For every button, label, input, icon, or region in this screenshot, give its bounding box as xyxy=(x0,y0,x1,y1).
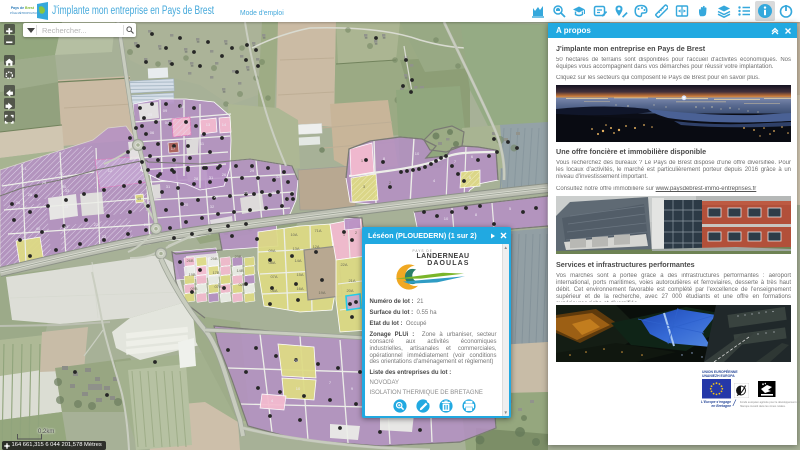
svg-text:19B: 19B xyxy=(188,272,195,277)
svg-text:26: 26 xyxy=(16,200,21,205)
svg-text:09: 09 xyxy=(163,108,168,113)
svg-text:40: 40 xyxy=(36,226,41,231)
svg-text:20: 20 xyxy=(184,202,189,207)
svg-text:06: 06 xyxy=(150,130,155,135)
svg-text:07A: 07A xyxy=(270,274,277,279)
svg-text:09A: 09A xyxy=(268,248,275,253)
svg-text:04: 04 xyxy=(165,120,170,125)
svg-text:07B: 07B xyxy=(214,284,221,289)
svg-text:30: 30 xyxy=(62,184,67,189)
svg-text:22: 22 xyxy=(214,194,219,199)
svg-text:09B: 09B xyxy=(190,286,197,291)
svg-text:45: 45 xyxy=(137,196,142,201)
svg-text:02B: 02B xyxy=(238,282,245,287)
svg-text:10: 10 xyxy=(444,216,449,221)
svg-text:2.1: 2.1 xyxy=(21,166,27,171)
svg-text:32: 32 xyxy=(210,204,215,209)
svg-text:31: 31 xyxy=(166,184,171,189)
svg-text:20: 20 xyxy=(294,358,299,363)
svg-text:12A: 12A xyxy=(312,244,319,249)
svg-text:23: 23 xyxy=(102,234,107,239)
svg-text:22A: 22A xyxy=(340,262,347,267)
svg-text:31: 31 xyxy=(209,175,214,180)
svg-text:10A: 10A xyxy=(290,232,297,237)
svg-text:29: 29 xyxy=(250,168,255,173)
svg-text:28: 28 xyxy=(194,176,199,181)
svg-text:15A: 15A xyxy=(296,272,303,277)
svg-text:13A: 13A xyxy=(292,246,299,251)
svg-text:17: 17 xyxy=(171,146,176,151)
svg-text:25B: 25B xyxy=(210,256,217,261)
svg-text:10: 10 xyxy=(296,386,301,391)
svg-text:23B: 23B xyxy=(234,254,241,259)
svg-text:21: 21 xyxy=(272,190,277,195)
svg-text:20A: 20A xyxy=(346,288,353,293)
svg-text:14B: 14B xyxy=(236,268,243,273)
svg-text:08A: 08A xyxy=(268,260,275,265)
svg-text:32: 32 xyxy=(59,171,64,176)
svg-text:05: 05 xyxy=(148,112,153,117)
svg-text:26B: 26B xyxy=(186,258,193,263)
svg-text:14A: 14A xyxy=(294,258,301,263)
svg-text:13: 13 xyxy=(206,122,211,127)
svg-text:26: 26 xyxy=(222,172,227,177)
svg-text:22: 22 xyxy=(94,222,99,227)
svg-text:29: 29 xyxy=(42,180,47,185)
svg-text:21A: 21A xyxy=(348,278,355,283)
svg-text:10: 10 xyxy=(415,151,420,156)
svg-text:08: 08 xyxy=(180,104,185,109)
svg-text:28: 28 xyxy=(28,192,33,197)
svg-text:25: 25 xyxy=(244,190,249,195)
svg-text:06A: 06A xyxy=(270,288,277,293)
svg-text:41: 41 xyxy=(64,224,69,229)
svg-text:16A: 16A xyxy=(296,286,303,291)
svg-text:17B: 17B xyxy=(212,270,219,275)
svg-text:19A: 19A xyxy=(318,290,325,295)
svg-text:25: 25 xyxy=(144,222,149,227)
svg-text:14: 14 xyxy=(222,122,227,127)
svg-text:12: 12 xyxy=(108,168,113,173)
svg-text:32: 32 xyxy=(276,174,281,179)
svg-text:35: 35 xyxy=(64,204,69,209)
svg-text:71A: 71A xyxy=(314,228,321,233)
